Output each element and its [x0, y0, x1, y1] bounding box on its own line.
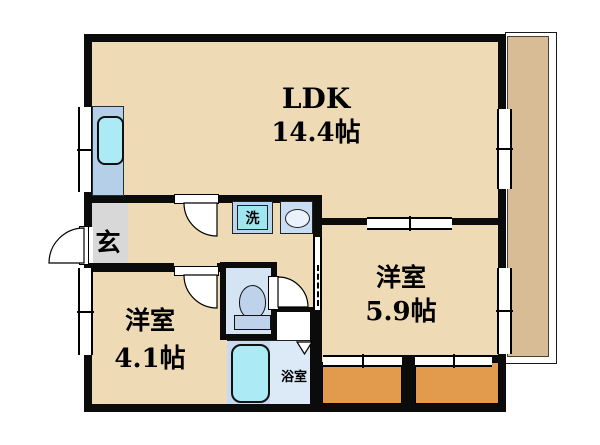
- balcony: [507, 36, 549, 357]
- wall: [310, 310, 322, 404]
- wall: [452, 218, 498, 225]
- bedroom-right-label: 洋室 5.9帖: [341, 260, 461, 330]
- window-bedroom-right: [497, 268, 512, 354]
- closet-divider-wall: [402, 355, 415, 404]
- washbasin-bowl: [285, 209, 310, 228]
- wall: [322, 218, 367, 225]
- folding-door-icon: [296, 341, 313, 356]
- sliding-door-bedroom-right: [313, 237, 322, 310]
- wall: [92, 263, 174, 272]
- closet-sliding-door: [415, 355, 492, 367]
- window-bedroom-right-top: [367, 217, 452, 230]
- entrance-label: 玄: [93, 223, 123, 259]
- ldk-name: LDK: [256, 82, 376, 116]
- bathroom-label: 浴室: [277, 366, 311, 385]
- bedroom-right-area: 5.9帖: [341, 295, 461, 330]
- closet-sliding-door: [323, 355, 402, 367]
- bathtub: [231, 344, 270, 403]
- ldk-room-label: LDK 14.4帖: [256, 82, 376, 150]
- wall: [313, 197, 322, 237]
- dressing-area: [277, 312, 310, 340]
- window-kitchen: [78, 107, 93, 192]
- door-swing-ldk: [181, 202, 221, 240]
- kitchen-sink: [97, 116, 124, 165]
- door-swing-toilet: [277, 276, 310, 309]
- bedroom-right-name: 洋室: [341, 260, 461, 295]
- toilet-tank: [234, 315, 271, 330]
- washing-machine: 洗: [237, 205, 268, 230]
- door-swing-entry: [46, 226, 86, 266]
- closet: [322, 362, 402, 404]
- laundry-label: 洗: [246, 208, 260, 228]
- bedroom-left-area: 4.1帖: [90, 340, 210, 378]
- window-ldk-right: [497, 109, 512, 189]
- closet: [415, 362, 499, 404]
- bedroom-left-name: 洋室: [90, 302, 210, 340]
- bedroom-left-label: 洋室 4.1帖: [90, 302, 210, 378]
- floor-plan: 洗 LDK 14.4帖 洋室 5.9帖 洋室: [0, 0, 600, 445]
- wall: [92, 195, 174, 203]
- ldk-area: 14.4帖: [256, 116, 376, 150]
- toilet-bowl: [239, 285, 266, 319]
